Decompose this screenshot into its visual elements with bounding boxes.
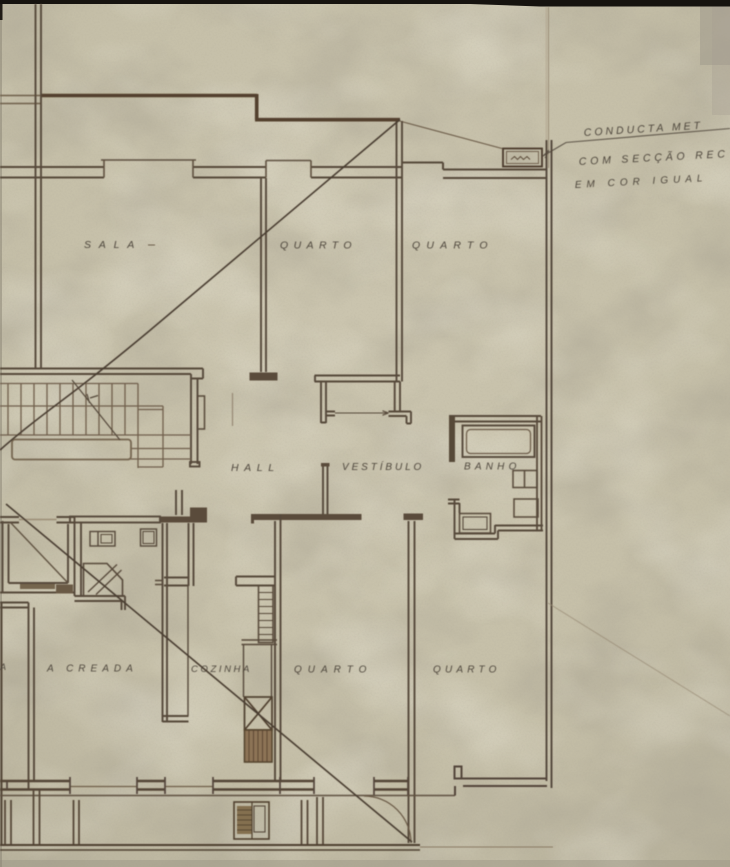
svg-text:VESTÍBULO: VESTÍBULO [342, 460, 424, 473]
svg-text:SALA: SALA [84, 239, 142, 251]
svg-text:QUARTO: QUARTO [433, 665, 501, 676]
svg-text:BANHO: BANHO [464, 462, 521, 473]
svg-text:QUARTO: QUARTO [280, 240, 357, 252]
svg-text:A: A [0, 662, 7, 672]
svg-text:QUARTO: QUARTO [294, 665, 372, 676]
svg-text:A CREADA: A CREADA [46, 664, 138, 675]
svg-text:QUARTO: QUARTO [412, 240, 494, 252]
svg-text:HALL: HALL [231, 462, 280, 474]
